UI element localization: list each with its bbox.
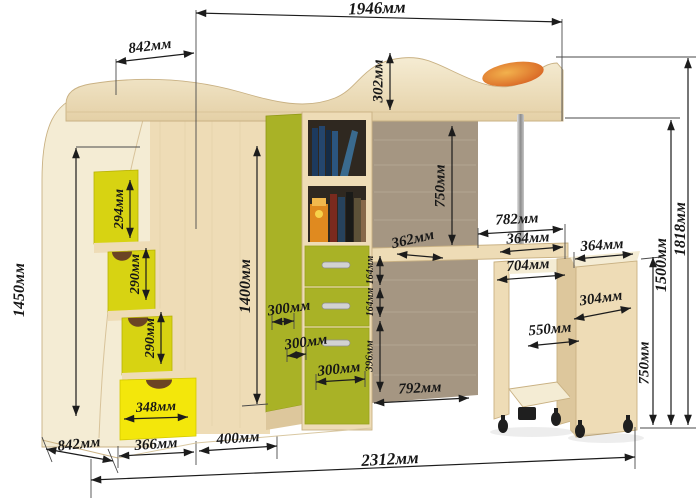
drawer-handle-2: [322, 303, 350, 309]
drawer-handle-3: [322, 340, 350, 346]
furniture-illustration: [0, 0, 700, 502]
wardrobe-door: [266, 114, 302, 412]
bookshelf-divider: [305, 176, 369, 186]
dim-line-366: [119, 452, 194, 456]
drawer-handle-1: [322, 262, 350, 268]
dim-line-1946: [196, 13, 562, 22]
table-dark-box: [518, 407, 536, 420]
dim-line-842-bottom: [46, 449, 113, 461]
dim-line-400: [199, 446, 277, 451]
bed-canopy: [66, 58, 563, 121]
table-left-panel: [494, 261, 509, 419]
mobile-pedestal: [570, 251, 640, 437]
diagram-canvas: 1946мм842мм302мм1450мм294мм290мм290мм348…: [0, 0, 700, 502]
table-top-rail: [509, 259, 557, 274]
pullout-table: [494, 258, 571, 425]
pedestal-side: [570, 257, 576, 437]
furniture-group: [42, 58, 644, 458]
stair-riser-3: [122, 316, 172, 375]
dim-line-842-top: [116, 53, 194, 62]
bookshelf-books-bottom: [310, 192, 366, 242]
stair-riser-2: [108, 250, 155, 312]
dim-line-2312: [91, 457, 635, 480]
table-shadow: [490, 427, 574, 437]
pedestal-shadow: [568, 433, 644, 443]
pedestal-front: [576, 261, 637, 437]
caster-wheel: [168, 438, 172, 444]
stair-riser-1: [94, 170, 138, 244]
support-pole: [517, 114, 524, 250]
